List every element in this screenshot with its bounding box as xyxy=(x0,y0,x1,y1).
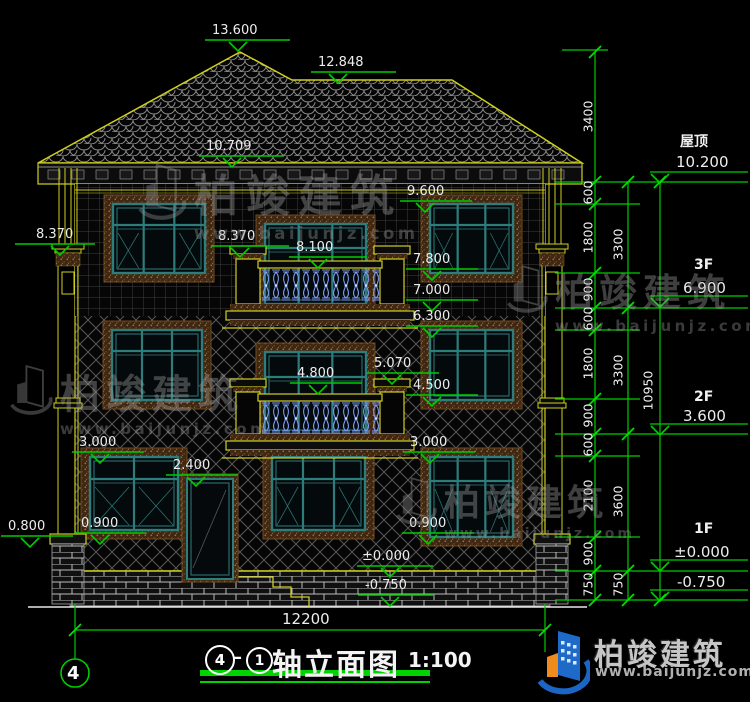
elevation-marker: 4.800 xyxy=(297,367,334,381)
level-triangle-icon xyxy=(229,42,247,51)
title-dash: – xyxy=(233,647,242,668)
dim-text: 3400 xyxy=(581,95,596,139)
elevation-marker: 0.900 xyxy=(409,517,446,531)
dentil xyxy=(48,170,60,179)
drawing-scale: 1:100 xyxy=(408,648,472,672)
window xyxy=(104,195,214,282)
dentil xyxy=(336,170,348,179)
elevation-marker: 4.500 xyxy=(413,379,450,393)
dim-text: 3300 xyxy=(611,349,626,393)
dim-text: 750 xyxy=(611,563,626,607)
elevation-marker: 2.400 xyxy=(173,459,210,473)
elevation-marker: 10.709 xyxy=(206,140,252,154)
dentil xyxy=(480,170,492,179)
floor-label-1f: 1F xyxy=(694,521,713,537)
dentil xyxy=(288,170,300,179)
elevation-marker: 0.900 xyxy=(81,517,118,531)
dim-text: 3300 xyxy=(611,223,626,267)
elevation-marker: 8.370 xyxy=(36,228,73,242)
elevation-marker: 6.300 xyxy=(413,310,450,324)
elevation-marker: ±0.000 xyxy=(362,550,410,564)
dim-text: 2100 xyxy=(581,474,596,518)
dim-text: 1800 xyxy=(581,342,596,386)
dentil xyxy=(456,170,468,179)
dentil xyxy=(192,170,204,179)
elevation-marker: 13.600 xyxy=(212,24,258,38)
floor-label-2f: 2F xyxy=(694,389,713,405)
dentil xyxy=(144,170,156,179)
dentil xyxy=(360,170,372,179)
dentil xyxy=(504,170,516,179)
elevation-marker: 5.070 xyxy=(374,357,411,371)
title-axis-end-circle: 1 xyxy=(246,647,273,674)
dentil xyxy=(264,170,276,179)
elevation-marker: 9.600 xyxy=(407,185,444,199)
dim-text: 1800 xyxy=(581,216,596,260)
title-axis-start: 4 xyxy=(215,651,225,669)
title-axis-end: 1 xyxy=(255,653,265,669)
elevation-drawing xyxy=(0,0,750,702)
floor-value-roof: 10.200 xyxy=(676,153,729,171)
dim-text: 750 xyxy=(581,563,596,607)
dentil xyxy=(72,170,84,179)
floor-value-basement: -0.750 xyxy=(677,573,725,591)
floor-value-2f: 3.600 xyxy=(683,407,726,425)
dentil xyxy=(240,170,252,179)
dim-text: 600 xyxy=(581,297,596,341)
floor-label-3f: 3F xyxy=(694,257,713,273)
company-logo: 柏竣建筑 www.baijunjz.com xyxy=(530,612,750,702)
dim-text: 600 xyxy=(581,171,596,215)
floor-value-1f: ±0.000 xyxy=(674,543,730,561)
floor-value-3f: 6.900 xyxy=(683,279,726,297)
elevation-marker: 7.000 xyxy=(413,284,450,298)
cad-elevation-canvas: 13.600 12.848 10.709 9.600 8.370 8.370 8… xyxy=(0,0,750,702)
company-logo-url: www.baijunjz.com xyxy=(595,664,750,680)
dentil xyxy=(312,170,324,179)
elevation-marker: -0.750 xyxy=(365,579,407,593)
elevation-marker: 7.800 xyxy=(413,253,450,267)
dim-text: 10950 xyxy=(641,369,656,413)
drawing-title: 轴立面图 xyxy=(272,640,400,684)
elevation-marker: 8.370 xyxy=(218,230,255,244)
dentil xyxy=(384,170,396,179)
dentil xyxy=(408,170,420,179)
dentil xyxy=(120,170,132,179)
entry-door xyxy=(182,474,238,582)
dentil xyxy=(168,170,180,179)
window xyxy=(421,448,522,546)
dim-text: 600 xyxy=(581,423,596,467)
dentil xyxy=(216,170,228,179)
dim-text: 3600 xyxy=(611,480,626,524)
roof xyxy=(38,52,582,163)
elevation-marker: 3.000 xyxy=(410,436,447,450)
title-axis-start-circle: 4 xyxy=(205,645,235,675)
elevation-marker: 12.848 xyxy=(318,56,364,70)
foundation-brick xyxy=(70,571,550,607)
overall-width-dim: 12200 xyxy=(282,610,330,628)
window xyxy=(263,448,374,539)
elevation-marker: 3.000 xyxy=(79,436,116,450)
dentil xyxy=(432,170,444,179)
dentil xyxy=(552,170,564,179)
window xyxy=(103,321,211,409)
elevation-marker: 0.800 xyxy=(8,520,45,534)
axis-bubble-number: 4 xyxy=(67,663,80,684)
company-logo-icon xyxy=(534,624,590,696)
level-triangle-icon xyxy=(21,538,39,547)
dentil xyxy=(528,170,540,179)
floor-label-roof: 屋顶 xyxy=(680,131,708,151)
dentil xyxy=(96,170,108,179)
eaves-cornice xyxy=(38,163,582,184)
elevation-marker: 8.100 xyxy=(296,241,333,255)
